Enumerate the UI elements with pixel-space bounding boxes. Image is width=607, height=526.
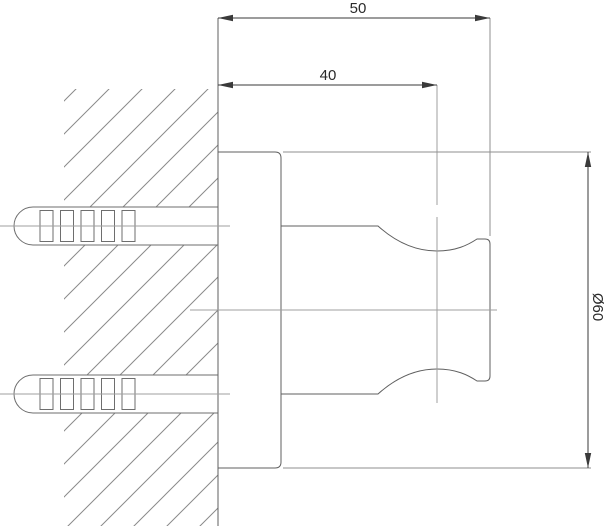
dimension-flange-diameter: Ø60 (585, 152, 606, 468)
arrowhead-down-icon (585, 453, 591, 468)
technical-drawing-page: 50 40 Ø60 (0, 0, 607, 526)
dimension-label-body-depth: 40 (320, 67, 337, 84)
arrowhead-right-icon (422, 82, 437, 88)
fixture-outline-group (218, 18, 490, 526)
arrowhead-right-icon (475, 15, 490, 21)
dimension-body-depth: 40 (218, 67, 437, 88)
arrowhead-left-icon (218, 15, 233, 21)
dimension-overall-depth: 50 (218, 0, 490, 21)
wall-section-hatching (64, 89, 218, 526)
dimension-label-overall-depth: 50 (350, 0, 367, 17)
arrowhead-left-icon (218, 82, 233, 88)
dimension-label-flange-diameter: Ø60 (589, 293, 606, 321)
hook-section-drawing: 50 40 Ø60 (0, 0, 607, 526)
arrowhead-up-icon (585, 152, 591, 167)
